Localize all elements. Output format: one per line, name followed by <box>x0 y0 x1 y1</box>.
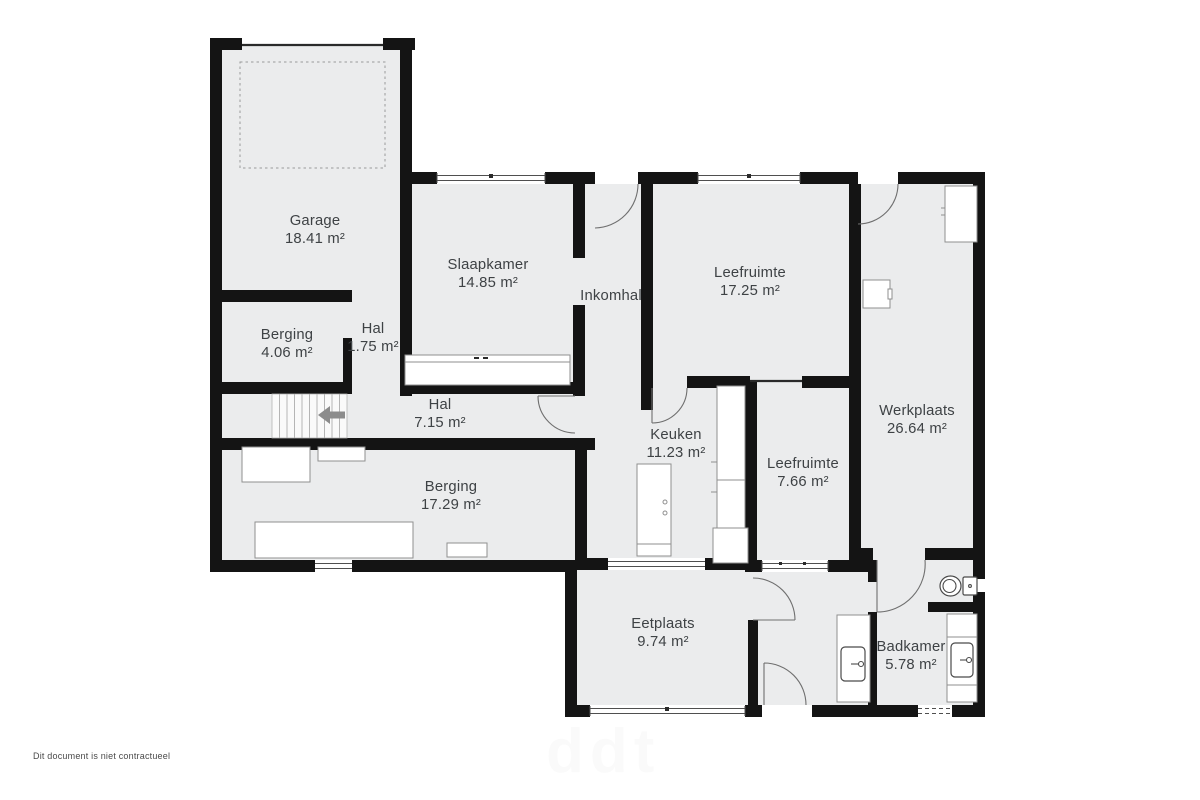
floorplan-drawing <box>0 0 1200 800</box>
wardrobe <box>405 355 570 385</box>
window-slaapkamer <box>437 172 545 184</box>
bathroom-vanity <box>947 614 977 702</box>
window-vestibule <box>762 560 828 572</box>
sliding-opening-keuken-eetplaats <box>608 558 705 570</box>
floorplan-page: Garage 18.41 m² Slaapkamer 14.85 m² Inko… <box>0 0 1200 800</box>
staircase <box>272 394 347 438</box>
washbasin-cabinet <box>837 615 870 702</box>
window-badkamer <box>918 705 952 717</box>
kitchen-counter <box>711 386 748 563</box>
window-berging <box>315 560 352 572</box>
watermark: ddt <box>546 716 660 787</box>
workbench <box>941 186 977 242</box>
window-leefruimte <box>698 172 800 184</box>
kitchen-island <box>637 464 671 556</box>
disclaimer-text: Dit document is niet contractueel <box>33 751 170 761</box>
boiler-unit <box>863 280 892 308</box>
